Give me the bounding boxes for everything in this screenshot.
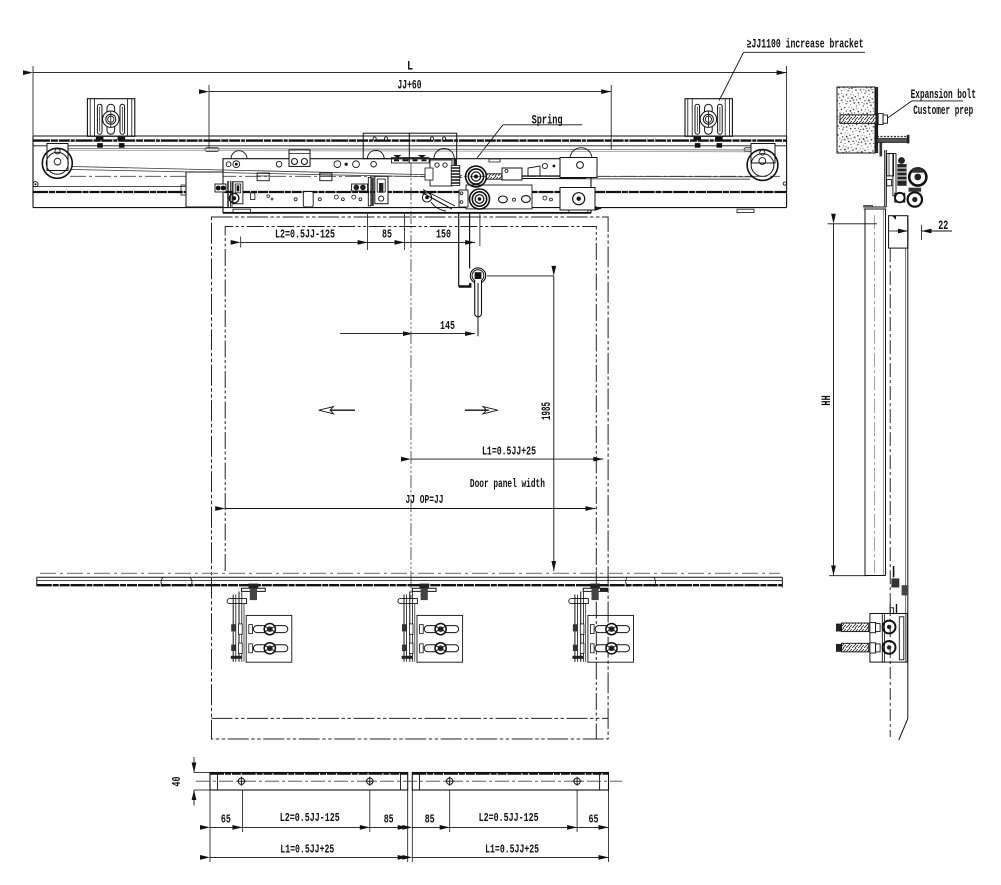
svg-text:L1=0.5JJ+25: L1=0.5JJ+25	[485, 844, 539, 857]
svg-text:L: L	[407, 60, 413, 74]
svg-text:L1=0.5JJ+25: L1=0.5JJ+25	[482, 446, 536, 459]
svg-text:Expansion bolt: Expansion bolt	[911, 88, 976, 102]
svg-text:Spring: Spring	[532, 114, 563, 128]
svg-text:≥JJ1100 increase bracket: ≥JJ1100 increase bracket	[747, 38, 864, 52]
svg-text:85: 85	[382, 229, 392, 242]
svg-text:HH: HH	[819, 395, 834, 406]
svg-text:1985: 1985	[539, 402, 554, 420]
svg-text:JJ OP=JJ: JJ OP=JJ	[406, 494, 444, 507]
svg-text:22: 22	[938, 219, 948, 233]
svg-text:145: 145	[440, 320, 455, 333]
svg-text:Customer prep: Customer prep	[913, 104, 973, 118]
svg-text:Door panel width: Door panel width	[470, 478, 545, 491]
svg-text:JJ+60: JJ+60	[398, 79, 422, 93]
svg-text:L2=0.5JJ-125: L2=0.5JJ-125	[275, 229, 335, 242]
svg-text:150: 150	[436, 229, 451, 242]
svg-text:L1=0.5JJ+25: L1=0.5JJ+25	[280, 844, 334, 857]
svg-text:65: 65	[221, 814, 231, 827]
svg-text:85: 85	[425, 814, 435, 827]
svg-text:40: 40	[170, 777, 184, 787]
svg-text:L2=0.5JJ-125: L2=0.5JJ-125	[280, 812, 340, 825]
svg-text:85: 85	[384, 814, 394, 827]
svg-text:65: 65	[589, 814, 599, 827]
svg-text:L2=0.5JJ-125: L2=0.5JJ-125	[479, 812, 539, 825]
